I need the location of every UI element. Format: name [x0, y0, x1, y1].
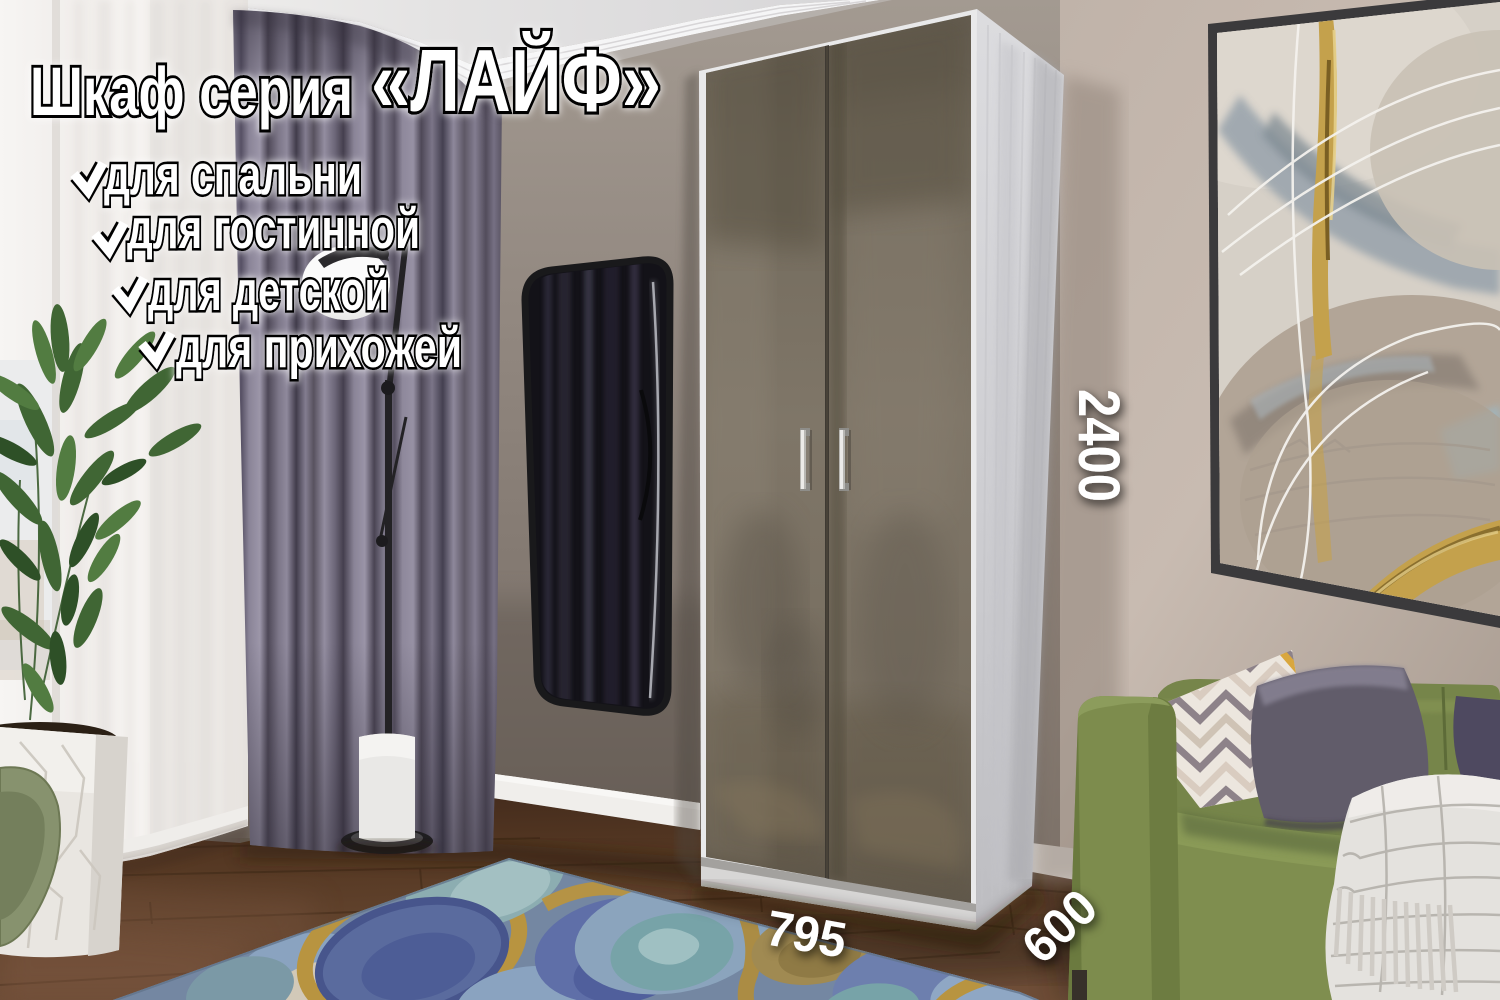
- svg-text:2400: 2400: [1066, 389, 1131, 502]
- svg-text:для прихожей: для прихожей: [176, 316, 462, 380]
- svg-text:для гостинной: для гостинной: [127, 197, 420, 261]
- svg-text:для детской: для детской: [148, 259, 389, 323]
- svg-text:«ЛАЙФ»: «ЛАЙФ»: [371, 31, 661, 130]
- svg-text:Шкаф серия: Шкаф серия: [30, 53, 353, 130]
